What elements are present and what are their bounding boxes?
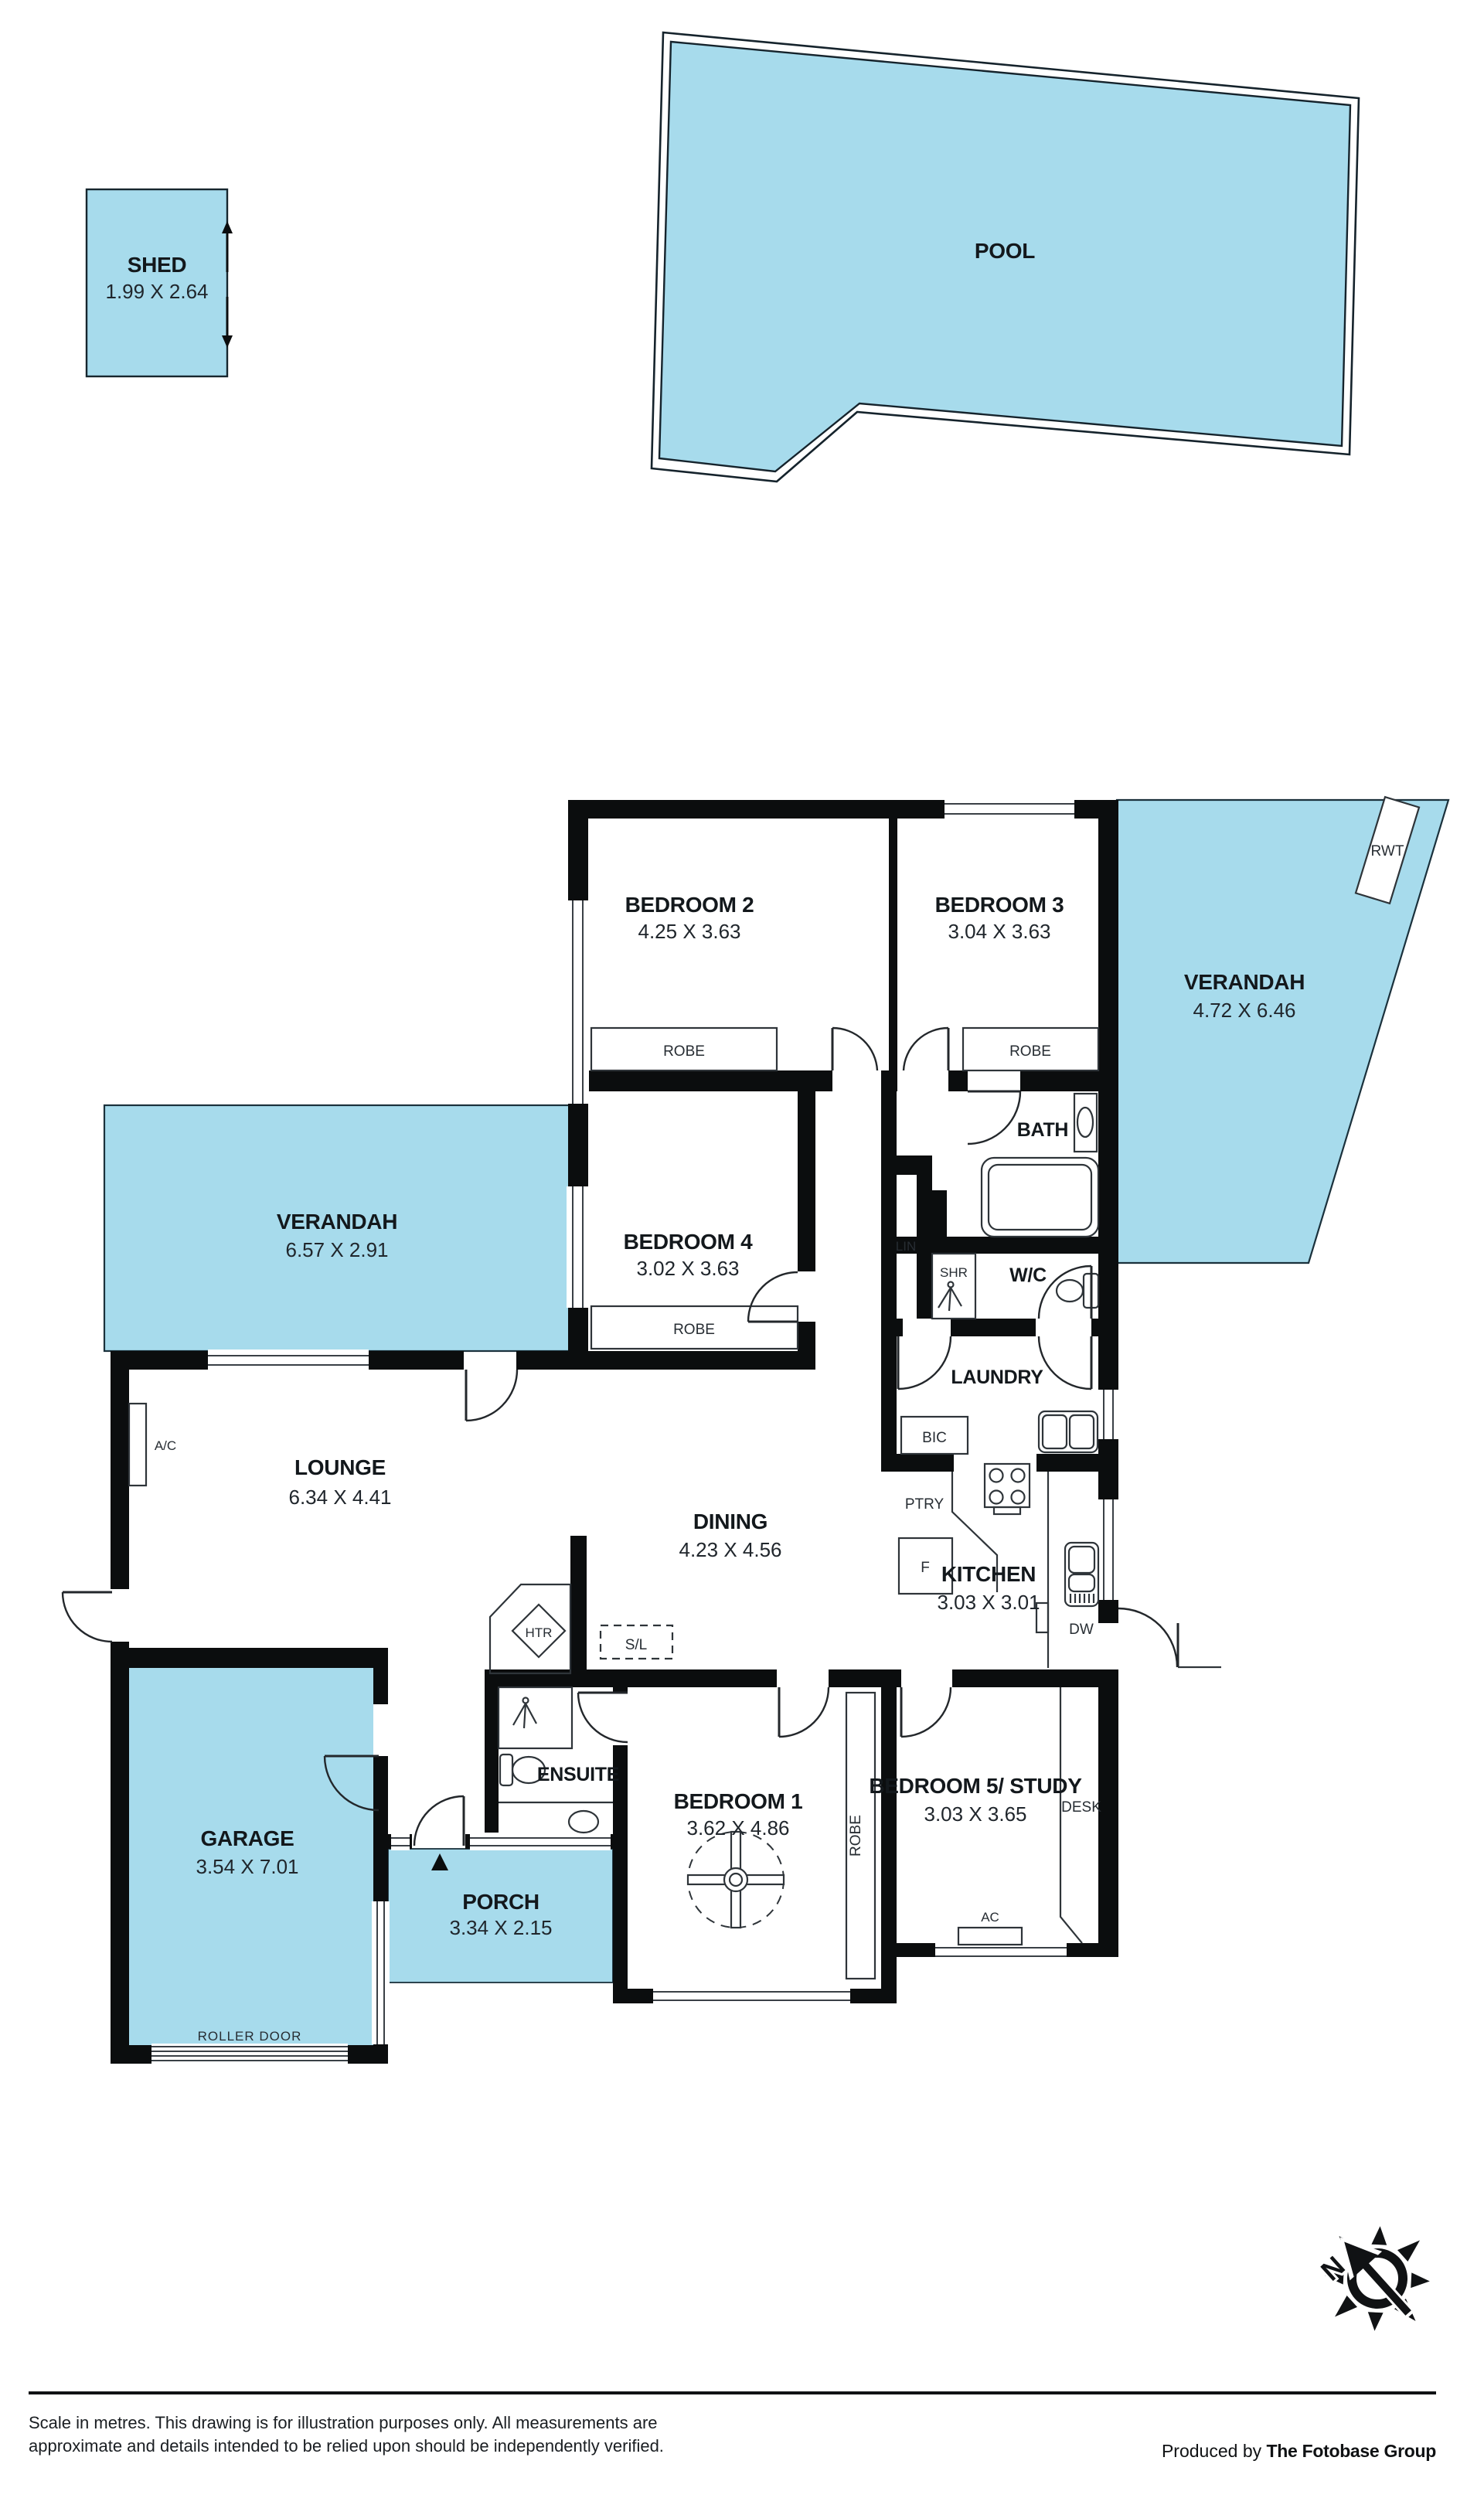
dining-label: DINING [693,1509,768,1533]
shed-label: SHED [128,253,187,277]
window-kitchen-right [1097,1499,1120,1600]
window-garage-right [372,1901,390,2044]
shower-icon-shr [932,1254,975,1319]
door-bedroom3 [904,1028,948,1070]
bic-label: BIC [922,1430,947,1446]
htr-label: HTR [526,1625,553,1640]
robe-label-bed3: ROBE [1009,1043,1051,1060]
bedroom5-dims: 3.03 X 3.65 [924,1802,1027,1826]
porch-dims: 3.34 X 2.15 [450,1916,553,1939]
dw-label: DW [1069,1622,1094,1638]
credit-brand: The Fotobase Group [1267,2441,1437,2461]
verandah-right-label: VERANDAH [1184,970,1305,994]
bedroom3-label: BEDROOM 3 [935,893,1064,917]
disclaimer-line2: approximate and details intended to be r… [29,2435,664,2458]
door-dining-exterior [1118,1608,1177,1667]
sink-icon-kitchen [1065,1543,1098,1606]
shower-icon-ensuite [499,1687,572,1748]
robe-label-bed2: ROBE [663,1043,705,1060]
pool-label: POOL [975,239,1035,263]
window-bedroom2-left [567,900,589,1104]
bedroom2-dims: 4.25 X 3.63 [638,920,741,943]
laundry-label: LAUNDRY [951,1367,1043,1388]
window-bedroom3-top [945,798,1074,820]
footer-divider [29,2391,1436,2394]
door-laundry-left [898,1336,951,1389]
door-ensuite [578,1693,628,1742]
ceiling-fan-icon [688,1832,784,1928]
laundry-trough-icon [1039,1411,1098,1452]
disclaimer-line1: Scale in metres. This drawing is for ill… [29,2411,664,2435]
bedroom4-label: BEDROOM 4 [624,1230,754,1254]
desk-label: DESK [1061,1799,1101,1816]
ac-unit-lounge [129,1404,146,1486]
sl-label: S/L [625,1637,648,1653]
shed-dims: 1.99 X 2.64 [106,280,209,303]
bedroom3-dims: 3.04 X 3.63 [948,920,1051,943]
bedroom1-label: BEDROOM 1 [674,1789,803,1813]
dining-dims: 4.23 X 4.56 [679,1538,782,1561]
fridge-label: F [921,1560,930,1576]
window-porch-left [391,1833,410,1850]
ensuite-label: ENSUITE [537,1764,619,1785]
kitchen-label: KITCHEN [941,1562,1036,1586]
door-bedroom1 [779,1687,829,1737]
basin-icon-ensuite [569,1811,598,1833]
window-ensuite-front [470,1833,611,1850]
garage-dims: 3.54 X 7.01 [196,1855,299,1878]
door-bedroom5 [901,1687,951,1737]
bathtub-icon [982,1158,1098,1237]
producer-credit: Produced by The Fotobase Group [1162,2441,1436,2462]
door-front [414,1796,464,1846]
door-bedroom2 [832,1028,877,1070]
roller-door-label: ROLLER DOOR [198,2029,302,2044]
rwt-label: RWT [1371,843,1404,859]
door-verandah-lounge [466,1370,517,1421]
door-laundry-right [1039,1336,1091,1389]
ac-bed5-label: AC [981,1910,999,1925]
bedroom5-label: BEDROOM 5/ STUDY [869,1774,1082,1798]
bedroom4-dims: 3.02 X 3.63 [637,1257,740,1280]
lounge-dims: 6.34 X 4.41 [289,1486,392,1509]
robe-label-bed4: ROBE [673,1322,715,1338]
verandah-left-label: VERANDAH [277,1210,397,1234]
window-verandah-wall [208,1350,369,1371]
wc-label: W/C [1009,1264,1047,1286]
door-lounge-exterior [63,1592,112,1642]
disclaimer-text: Scale in metres. This drawing is for ill… [29,2411,664,2458]
door-bedroom4 [748,1272,798,1322]
garage-label: GARAGE [200,1826,294,1850]
kitchen-dims: 3.03 X 3.01 [938,1591,1040,1614]
shr-label: SHR [940,1265,968,1280]
verandah-right-dims: 4.72 X 6.46 [1193,999,1296,1022]
bedroom2-label: BEDROOM 2 [625,893,754,917]
ac-lounge-label: A/C [155,1438,176,1453]
north-compass-icon: N [1296,2197,1458,2359]
toilet-icon-bath [1074,1094,1097,1152]
porch-label: PORCH [462,1890,539,1914]
stove-icon [985,1464,1030,1514]
window-laundry-right [1097,1390,1120,1439]
bath-label: BATH [1017,1119,1068,1141]
door-bath [968,1091,1020,1144]
window-bedroom4-left [567,1186,589,1308]
bedroom1-dims: 3.62 X 4.86 [687,1816,790,1840]
credit-prefix: Produced by [1162,2441,1267,2461]
floor-plan: N SHED 1.99 X 2.64 POOL BEDROOM 2 4.25 X… [0,0,1484,2388]
roller-door-icon [151,2044,348,2064]
verandah-left-dims: 6.57 X 2.91 [286,1238,389,1261]
robe-label-bed1: ROBE [848,1815,864,1857]
lin-label: LIN [896,1239,916,1254]
window-bedroom1-bottom [653,1986,850,2006]
lounge-label: LOUNGE [294,1455,386,1479]
ptry-label: PTRY [905,1496,945,1513]
